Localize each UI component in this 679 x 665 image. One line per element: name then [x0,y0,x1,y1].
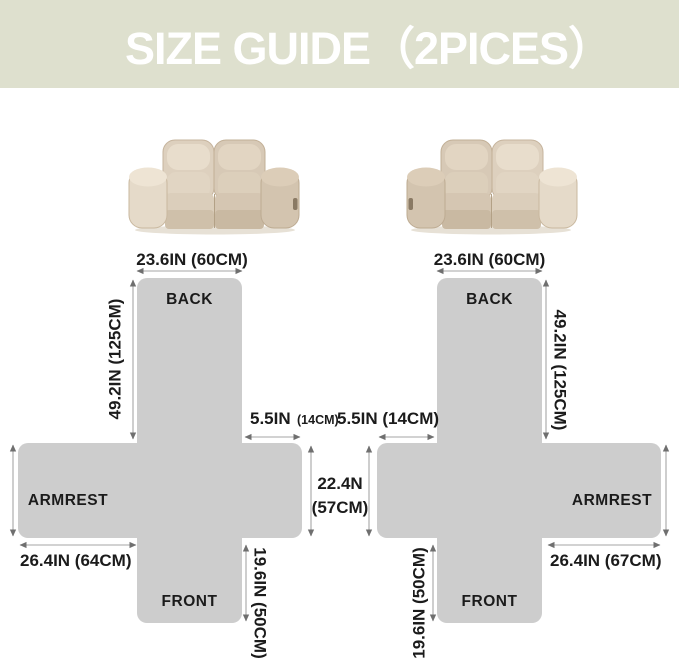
left-armrest-label: ARMREST [28,492,108,509]
sofa-armroll [539,168,577,187]
sofa-headrest [218,144,261,170]
loveseat-image-left [127,136,301,236]
seat-height-dim-line1: 22.4N [317,474,362,493]
left-shoulder-dim-cm: (14CM) [297,413,339,427]
left-shoulder-dim-in: 5.5IN [250,409,291,428]
left-back-height-dim: 49.2IN (125CM) [106,299,125,420]
sofa-illustration [129,140,299,235]
right-front-height-dim: 19.6IN (50CM) [410,547,429,658]
left-back-label: BACK [166,291,213,308]
right-armrest-label: ARMREST [572,492,652,509]
sofa-recliner-panel [215,210,264,229]
sofa-illustration [407,140,577,235]
sofa-recliner-panel [492,210,541,229]
seat-height-dim-line2: (57CM) [312,498,369,517]
sofa-armroll [407,168,445,187]
header-banner: SIZE GUIDE（2PICES） [0,0,679,88]
right-front-label: FRONT [462,593,518,610]
sofa-recliner-handle [293,198,298,210]
left-cross-diagram: 23.6IN (60CM) BACK 49.2IN (125CM) 5.5IN … [13,250,339,659]
loveseat-image-right [405,136,579,236]
size-diagram: 23.6IN (60CM) BACK 49.2IN (125CM) 5.5IN … [0,240,679,665]
size-guide-page: SIZE GUIDE（2PICES） [0,0,679,665]
right-shoulder-dim: 5.5IN (14CM) [337,409,439,428]
sofa-recliner-panel [442,210,491,229]
left-armrest-length-dim: 26.4IN (64CM) [20,551,131,570]
right-cross-diagram: 23.6IN (60CM) BACK 49.2IN (125CM) 5.5IN … [337,250,666,659]
sofa-headrest [167,144,210,170]
sofa-armroll [261,168,299,187]
sofa-recliner-handle [409,198,414,210]
right-back-label: BACK [466,291,513,308]
left-top-width-dim: 23.6IN (60CM) [136,250,247,269]
left-front-height-dim: 19.6IN (50CM) [251,547,270,658]
sofa-armroll [129,168,167,187]
right-cross-armrest-panel [377,443,661,538]
sofa-headrest [496,144,539,170]
right-top-width-dim: 23.6IN (60CM) [434,250,545,269]
sofa-headrest [445,144,488,170]
right-armrest-length-dim: 26.4IN (67CM) [550,551,661,570]
right-back-height-dim: 49.2IN (125CM) [551,310,570,431]
sofa-recliner-panel [165,210,214,229]
middle-seat-height-dim: 22.4N (57CM) [312,474,369,517]
left-cross-armrest-panel [18,443,302,538]
left-front-label: FRONT [162,593,218,610]
page-title: SIZE GUIDE（2PICES） [125,12,612,77]
